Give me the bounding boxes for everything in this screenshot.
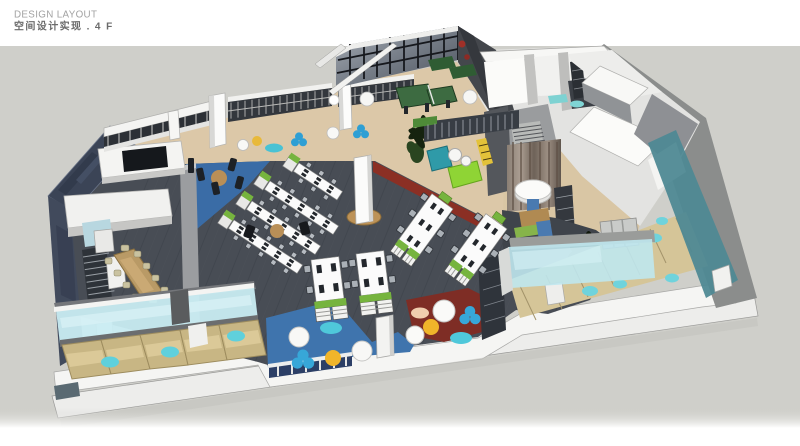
svg-text:DESIGN LAYOUT: DESIGN LAYOUT [14,10,97,21]
svg-text:空间设计实现 . 4 F: 空间设计实现 . 4 F [14,20,114,33]
